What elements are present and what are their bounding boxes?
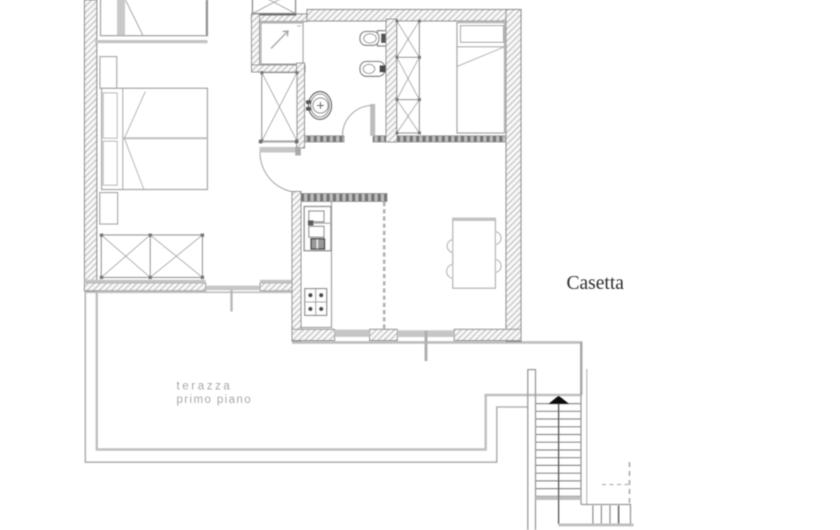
svg-text:Casetta: Casetta bbox=[567, 273, 625, 294]
svg-text:primo piano: primo piano bbox=[177, 394, 253, 406]
svg-text:terazza: terazza bbox=[177, 381, 233, 393]
